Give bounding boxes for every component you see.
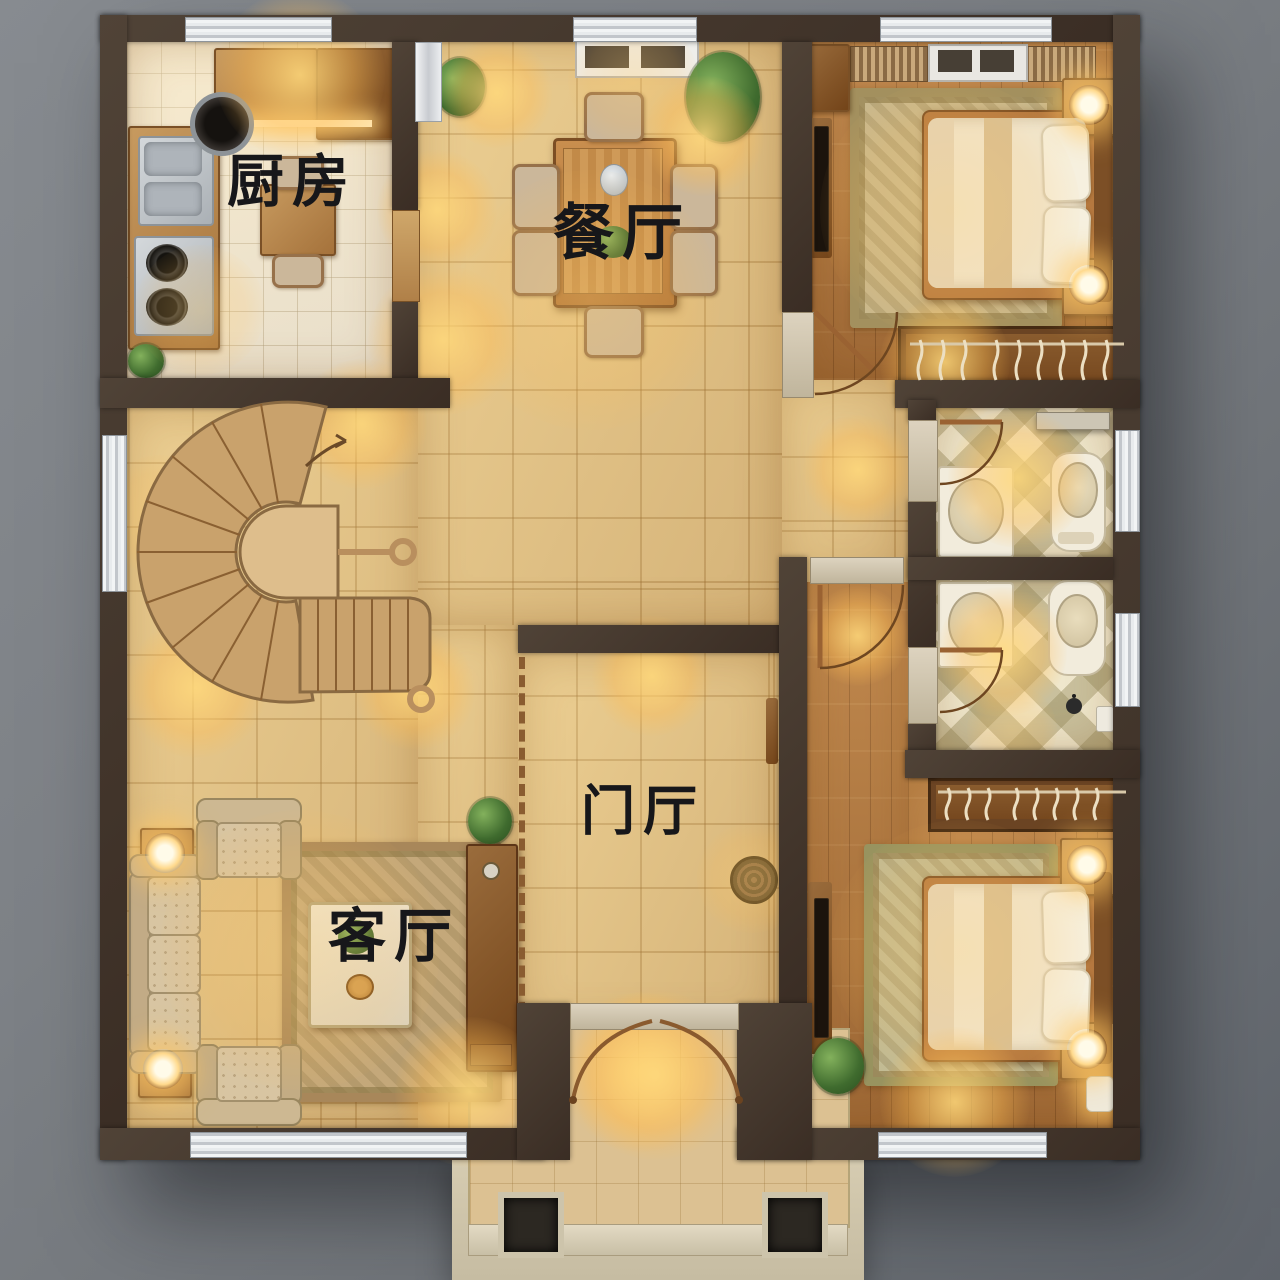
window-right-bathroom2	[1115, 613, 1140, 707]
bedroom1-door-sill	[782, 312, 814, 398]
bathroom2-spray-bottle	[1066, 698, 1082, 714]
bathroom2-door-sill	[908, 647, 938, 724]
window-top-bedroom1	[880, 17, 1052, 42]
foyer-slat-screen	[519, 657, 531, 1032]
sofa-cushion-3	[147, 992, 201, 1052]
dining-chair-north	[584, 92, 644, 142]
bedroom2-pillow-1	[1041, 889, 1092, 965]
window-left-stairs	[102, 435, 127, 592]
bedroom2-foot-fold	[928, 884, 954, 1050]
coffee-table-bowl	[346, 974, 374, 1000]
corridor-threshold	[810, 557, 904, 584]
window-right-bathroom1	[1115, 430, 1140, 532]
bedroom1-foot-fold	[928, 118, 954, 288]
wall-kitchen-bottom	[100, 378, 450, 408]
bedroom1-lamp-bottom	[1069, 265, 1109, 305]
divider-cabinet-plant	[468, 798, 512, 844]
coat-hook-board	[766, 698, 778, 764]
bathroom1-toilet-base	[1058, 532, 1094, 544]
wall-bedroom1-left	[782, 42, 812, 312]
window-bottom-living	[190, 1132, 467, 1158]
wall-foyer-right	[779, 557, 807, 1003]
dining-plant-left	[435, 58, 485, 116]
armchair-bottom-seat	[216, 1046, 282, 1102]
wall-kitchen-right-lower	[392, 300, 418, 380]
entry-lintel	[570, 1003, 739, 1030]
bedroom2-plant	[812, 1038, 864, 1094]
window-bottom-bedroom2	[878, 1132, 1047, 1158]
bathroom1-toilet-bowl	[1058, 462, 1098, 518]
bathroom2-toilet-bowl	[1056, 594, 1098, 648]
floor-plan-render: 厨房 餐厅 客厅 门厅	[0, 0, 1280, 1280]
wall-entry-block-right	[737, 1003, 812, 1160]
bedroom1-lamp-top	[1069, 85, 1109, 125]
window-top-kitchen	[185, 17, 332, 42]
bathroom1-door-sill	[908, 420, 938, 502]
bedroom2-wardrobe-interior	[936, 785, 1126, 819]
dining-plant-right	[686, 52, 760, 142]
bathroom2-tissue	[1096, 706, 1114, 732]
bedroom1-blind-left	[850, 46, 928, 82]
bedroom2-lamp-top	[1067, 845, 1107, 885]
skylight-pane-2	[641, 46, 685, 68]
sofa-cushion-1	[147, 876, 201, 936]
sink-basin-1	[144, 142, 202, 176]
wall-foyer-top	[518, 625, 782, 653]
foyer-round-mat	[730, 856, 778, 904]
bedroom2-tv-screen	[814, 898, 829, 1038]
column-kitchen-dining	[415, 42, 442, 122]
kitchen-chair-bottom	[272, 254, 324, 288]
bathroom1-sink-basin	[948, 478, 1004, 544]
living-lamp-bottom	[143, 1049, 183, 1089]
stove-burner-2	[146, 288, 188, 326]
armchair-top-seat	[216, 822, 282, 878]
room-label-dining: 餐厅	[553, 183, 691, 272]
kitchen-plant	[128, 344, 164, 378]
bedroom1-runner-stripe	[984, 118, 1012, 288]
bathroom2-sink-basin	[948, 592, 1004, 656]
porch-pillar-right	[762, 1192, 828, 1258]
bathroom1-shelf	[1036, 412, 1110, 430]
room-label-kitchen: 厨房	[227, 136, 357, 218]
living-lamp-top	[145, 833, 185, 873]
wall-bath-divider	[908, 557, 1113, 580]
wall-entry-block-left	[517, 1003, 570, 1160]
bedroom1-blind-right	[1024, 46, 1096, 82]
wall-exterior-right	[1113, 15, 1140, 1160]
wall-bedroom2-top	[905, 750, 1140, 778]
room-label-foyer: 门厅	[581, 767, 705, 846]
skylight-pane-1	[585, 46, 629, 68]
bedroom1-tv-screen	[814, 126, 829, 252]
bedroom1-skylight-pane2	[980, 50, 1014, 72]
divider-cabinet-drawers	[470, 1044, 512, 1066]
kitchen-doorway-frame	[392, 210, 420, 302]
hall-floor	[782, 380, 908, 582]
room-label-living: 客厅	[328, 889, 460, 973]
dining-chair-south	[584, 306, 644, 358]
sink-basin-2	[144, 182, 202, 216]
armchair-bottom-back	[196, 1098, 302, 1126]
window-top-dining	[573, 17, 697, 42]
bedroom1-skylight-pane	[938, 50, 972, 72]
sofa-cushion-2	[147, 934, 201, 994]
bedroom1-wardrobe-interior	[906, 334, 1124, 384]
divider-cabinet-dial-top	[482, 862, 500, 880]
wall-bath-left-a	[908, 400, 936, 422]
bedroom2-lamp-bottom	[1067, 1029, 1107, 1069]
porch-pillar-left	[498, 1192, 564, 1258]
bedroom1-pillow-1	[1041, 123, 1092, 203]
bedroom2-candle	[1086, 1076, 1114, 1112]
stove-burner-1	[146, 244, 188, 282]
bedroom2-runner-stripe	[984, 884, 1012, 1050]
